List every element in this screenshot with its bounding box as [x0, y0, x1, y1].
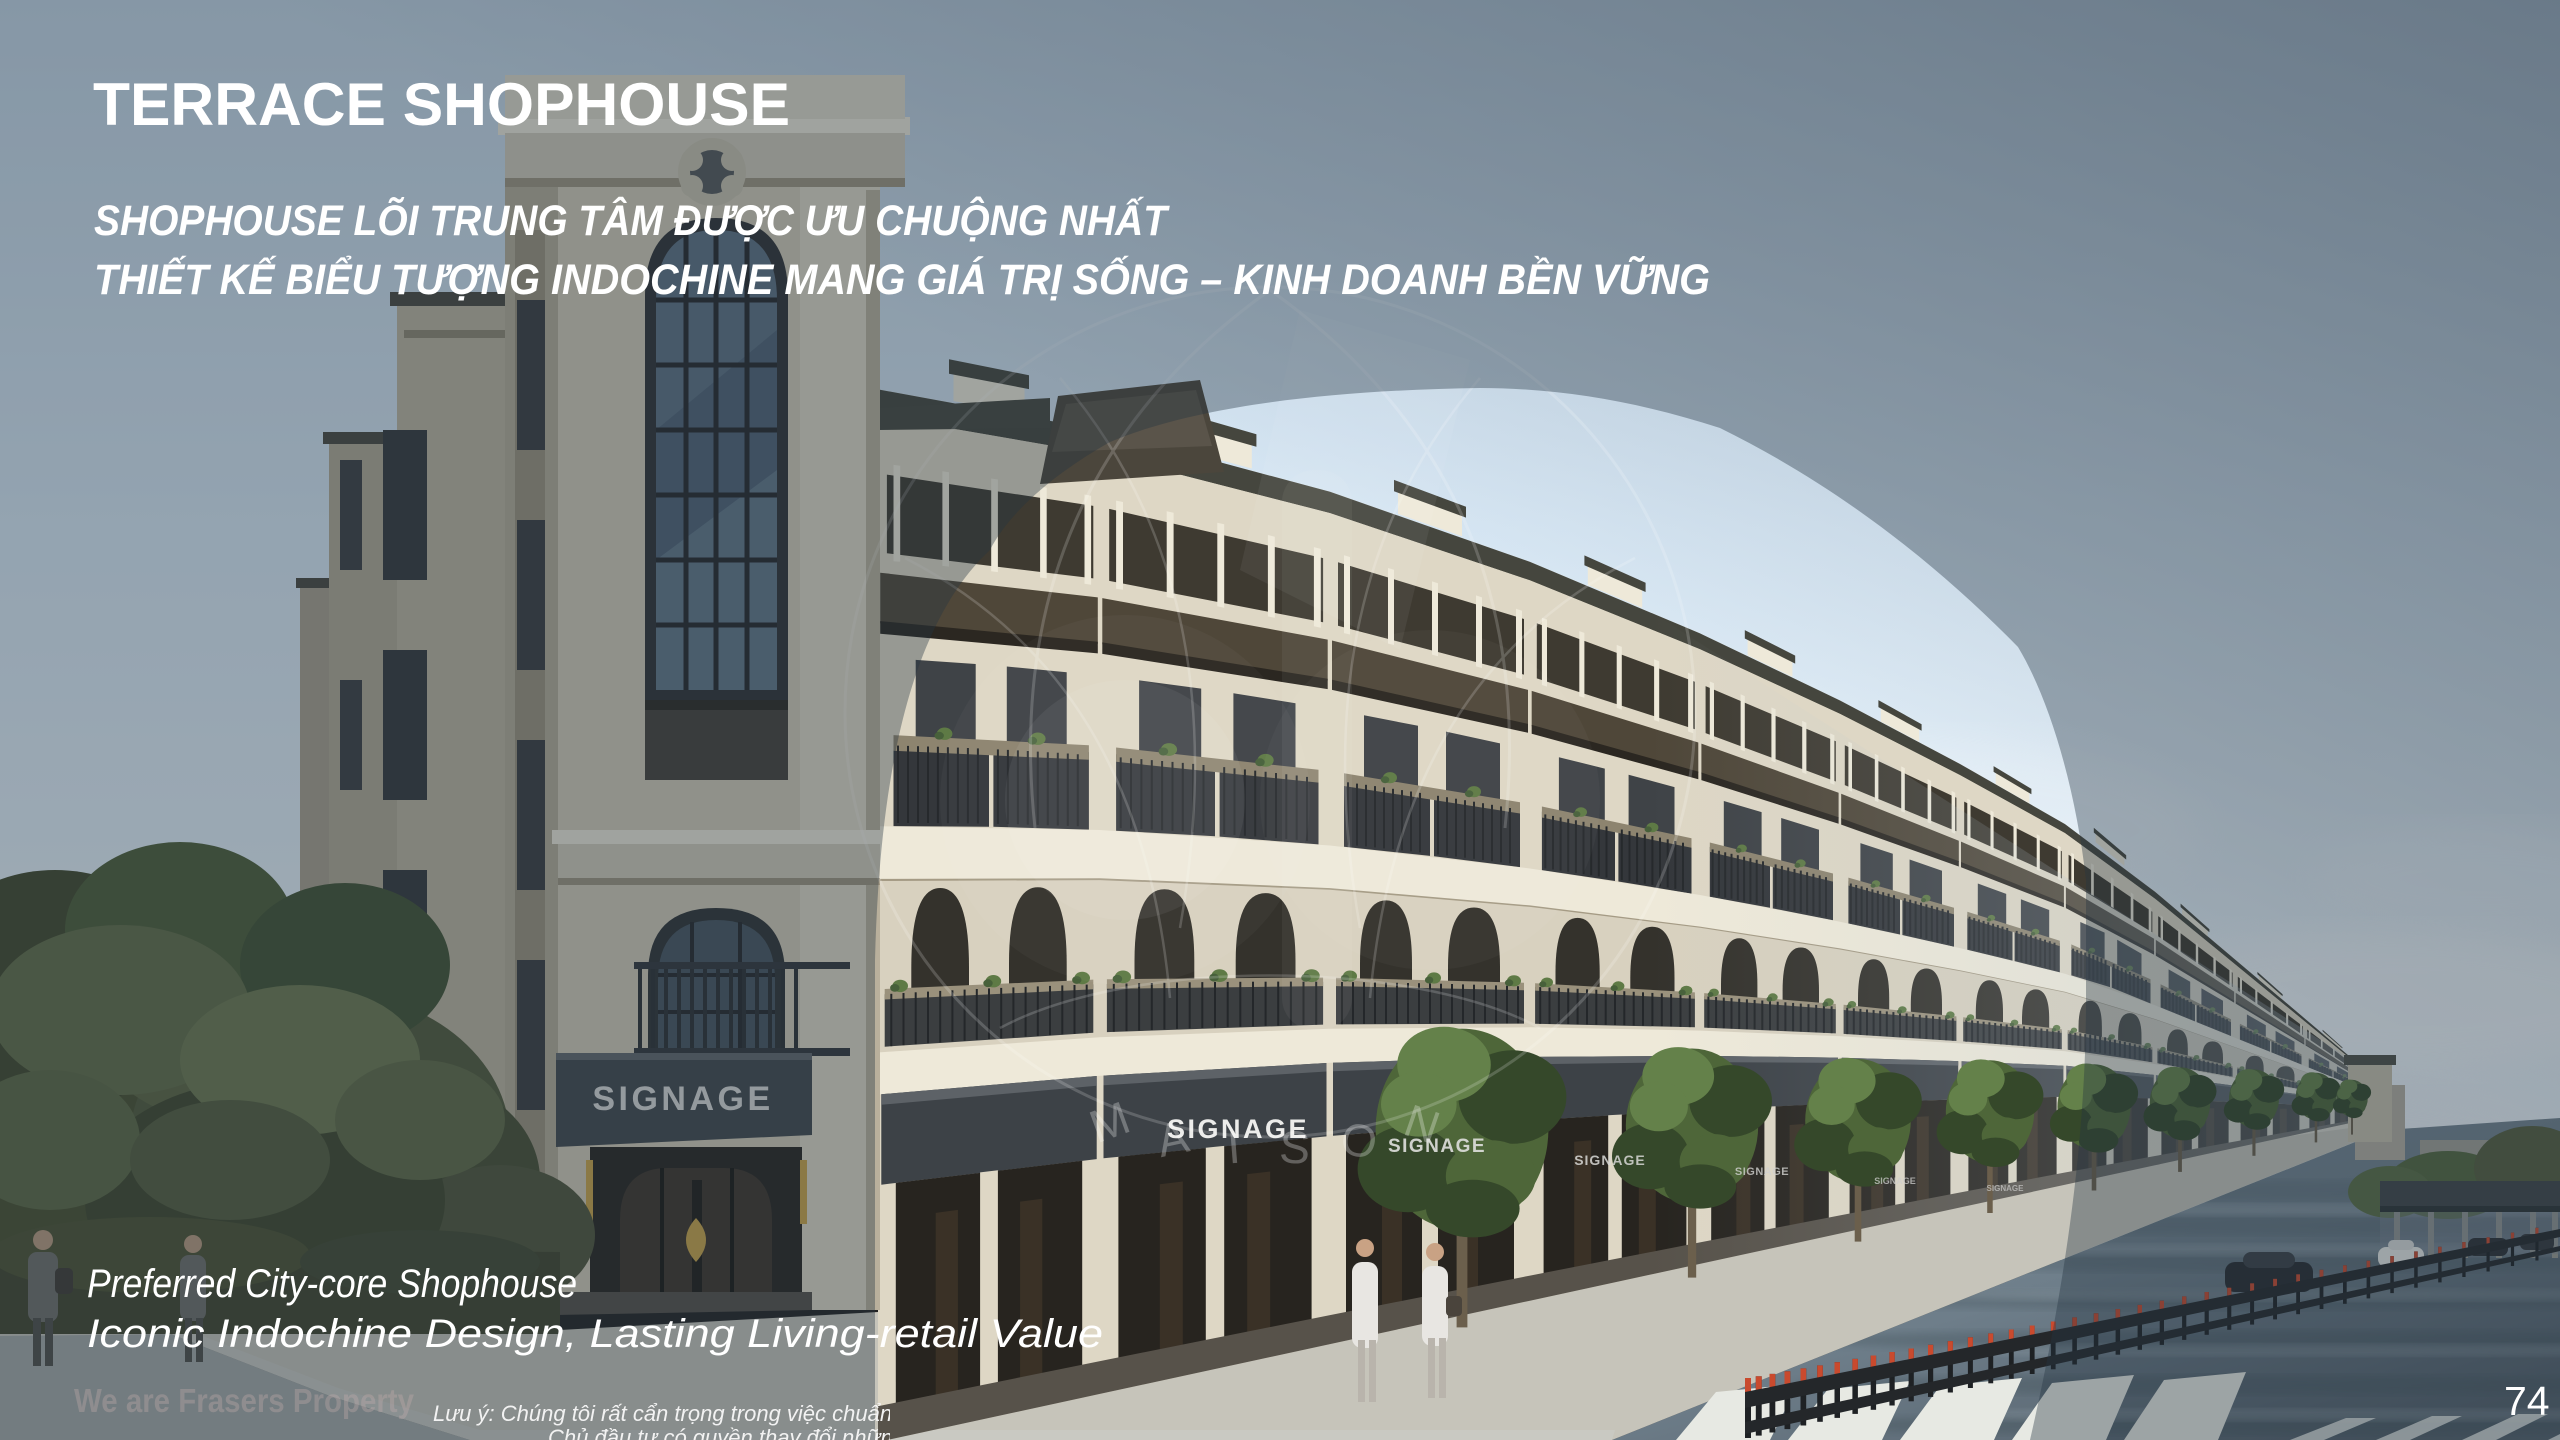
- svg-text:74: 74: [2504, 1378, 2550, 1424]
- svg-text:SIGNAGE: SIGNAGE: [1574, 1152, 1646, 1168]
- svg-text:S: S: [1278, 1120, 1311, 1174]
- svg-text:Chủ đầu tư có quyền thay đổi n: Chủ đầu tư có quyền thay đổi những thứ: [548, 1425, 945, 1440]
- svg-text:TERRACE SHOPHOUSE: TERRACE SHOPHOUSE: [93, 71, 790, 138]
- svg-text:SIGNAGE: SIGNAGE: [1735, 1166, 1789, 1178]
- svg-text:SIGNAGE: SIGNAGE: [1874, 1176, 1916, 1186]
- svg-text:Iconic Indochine Design, Lasti: Iconic Indochine Design, Lasting Living-…: [87, 1312, 1103, 1356]
- svg-text:We are Frasers Property: We are Frasers Property: [74, 1382, 415, 1419]
- svg-text:Preferred City-core Shophouse: Preferred City-core Shophouse: [87, 1262, 577, 1306]
- svg-text:THIẾT KẾ BIỂU TƯỢNG INDOCHINE: THIẾT KẾ BIỂU TƯỢNG INDOCHINE MANG GIÁ T…: [94, 255, 1710, 304]
- svg-text:SIGNAGE: SIGNAGE: [1987, 1184, 2025, 1193]
- svg-text:SHOPHOUSE LÕI TRUNG TÂM ĐƯỢC Ư: SHOPHOUSE LÕI TRUNG TÂM ĐƯỢC ƯU CHUỘNG N…: [94, 196, 1170, 245]
